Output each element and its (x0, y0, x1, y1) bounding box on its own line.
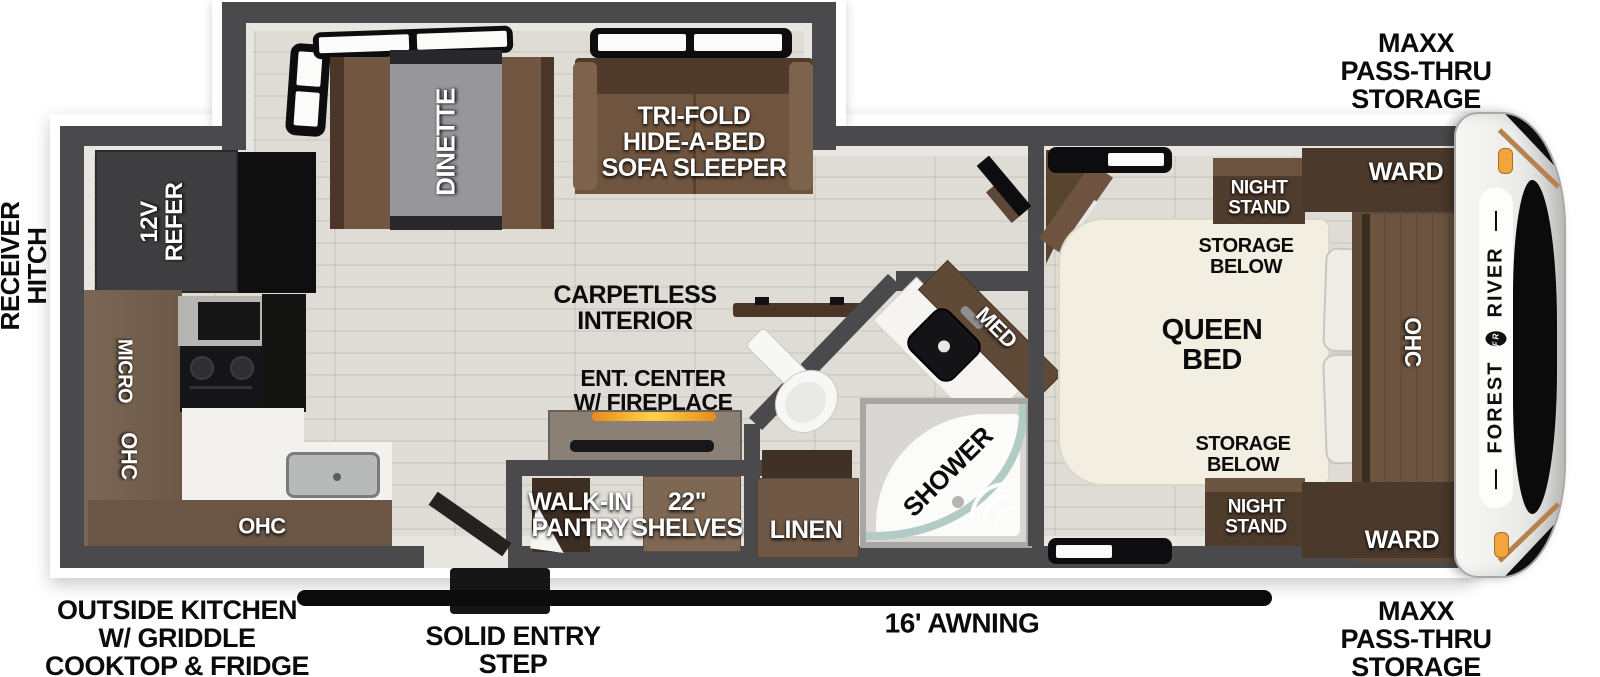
linen-label: LINEN (770, 517, 843, 543)
solid-entry-step-label: SOLID ENTRY STEP (425, 622, 600, 677)
bedroom-window-top (1048, 147, 1172, 173)
slideout-top-wall (222, 2, 836, 23)
maxx-storage-bottom-label: MAXX PASS-THRU STORAGE (1340, 597, 1491, 677)
rear-wall (60, 126, 84, 568)
counter-marble-left (182, 408, 254, 502)
brand-rule-left: — (1485, 469, 1507, 489)
storage-below-bottom-label: STORAGE BELOW (1195, 434, 1290, 476)
ward-bottom-label: WARD (1365, 527, 1439, 553)
wall-shelf (733, 303, 863, 317)
brand-river-text: RIVER (1485, 246, 1507, 317)
ohc-lower-label: OHC (238, 516, 285, 539)
pantry-left-wall (506, 460, 522, 568)
slideout-right-wall (812, 2, 836, 150)
sofa-window (590, 28, 792, 58)
nightstand-bottom-label: NIGHT STAND (1225, 497, 1287, 537)
queen-bed-label: QUEEN BED (1162, 315, 1263, 375)
cooktop (180, 346, 266, 412)
dinette-bench-left (330, 57, 390, 229)
marker-light-top (1498, 148, 1513, 174)
maxx-storage-top-label: MAXX PASS-THRU STORAGE (1340, 29, 1491, 113)
fireplace-flame (592, 412, 716, 421)
top-wall-left (60, 126, 224, 146)
sofa-label: TRI-FOLD HIDE-A-BED SOFA SLEEPER (602, 103, 787, 181)
ohc-bedroom-label: OHC (1400, 317, 1424, 367)
brand-rule-right: — (1485, 211, 1507, 231)
pantry-shelves-label: 22" SHELVES (631, 489, 742, 541)
sofa-arm-left (573, 62, 597, 190)
refer-label: 12V REFER (138, 183, 188, 262)
ent-center-label: ENT. CENTER W/ FIREPLACE (574, 367, 733, 415)
kitchen-sink (286, 452, 380, 498)
shelf-bracket-right (830, 297, 844, 305)
pantry-label: WALK-IN PANTRY (528, 489, 631, 541)
micro-label: MICRO (114, 339, 135, 403)
ohc-wall-label: OHC (117, 432, 140, 479)
nightstand-top-label: NIGHT STAND (1228, 178, 1290, 218)
awning-label: 16' AWNING (885, 608, 1040, 637)
cap-accent-bottom (1500, 512, 1566, 576)
shelf-bracket-left (755, 297, 769, 305)
slideout-left-wall (222, 2, 246, 150)
brand-forest-text: FOREST (1485, 361, 1507, 454)
microwave (178, 296, 266, 346)
ward-top-label: WARD (1369, 159, 1443, 185)
sofa-back (575, 58, 813, 94)
refrigerator-side (238, 152, 316, 293)
dinette-bench-right (502, 57, 554, 229)
floorplan-canvas: DINETTE TRI-FOLD HIDE-A-BED SOFA SLEEPER… (0, 0, 1600, 677)
bedroom-window-bottom (1048, 538, 1172, 564)
carpetless-label: CARPETLESS INTERIOR (553, 282, 716, 334)
cap-windshield-decal (1513, 180, 1557, 514)
front-cap: — FORESTFRRIVER — (1454, 112, 1566, 578)
top-wall-right (834, 126, 1476, 146)
shower-drain (952, 496, 964, 508)
appliance-side-shadow (262, 294, 306, 412)
receiver-hitch-label: RECEIVER HITCH (0, 202, 51, 331)
tv-bar (570, 440, 714, 452)
sofa-arm-right (789, 62, 813, 190)
awning-bar (297, 590, 1272, 606)
linen-cabinet-top (762, 450, 852, 478)
outside-kitchen-label: OUTSIDE KITCHEN W/ GRIDDLE COOKTOP & FRI… (45, 596, 309, 677)
marker-light-bottom (1494, 532, 1509, 558)
storage-below-top-label: STORAGE BELOW (1198, 236, 1293, 278)
pantry-top-wall (506, 460, 762, 476)
forest-river-logo-icon: FR (1486, 332, 1507, 347)
dinette-label: DINETTE (432, 88, 459, 196)
